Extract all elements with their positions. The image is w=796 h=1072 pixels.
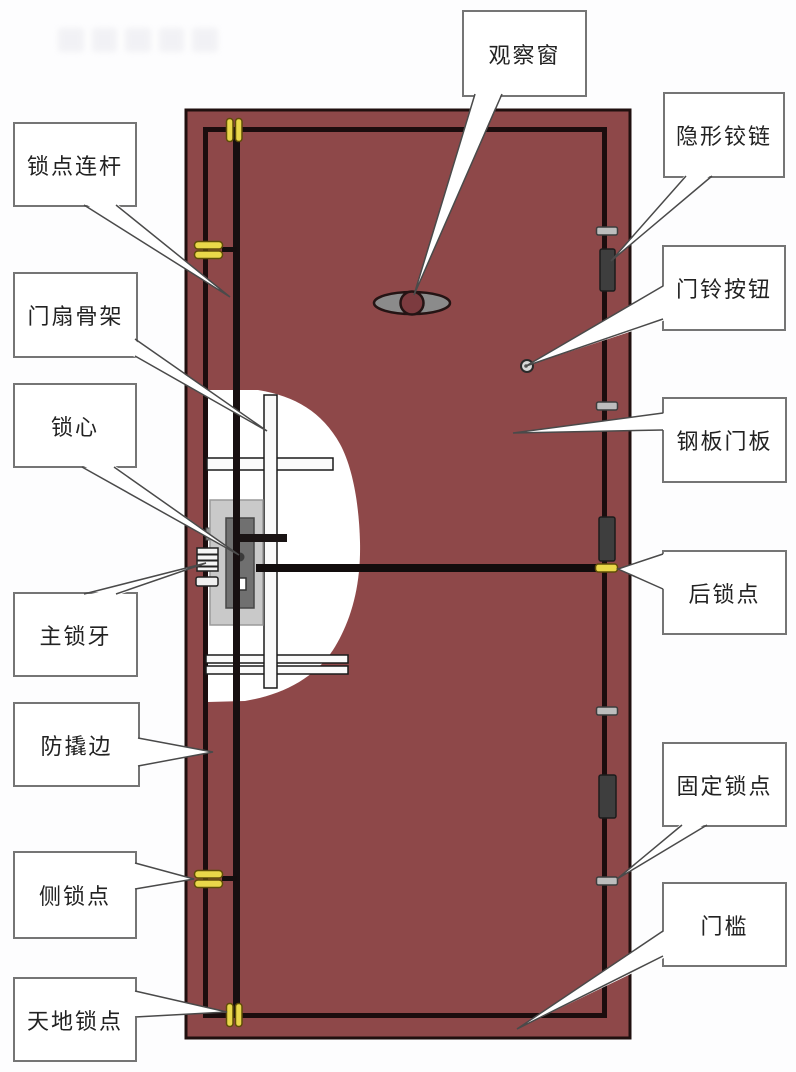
peephole	[374, 292, 450, 315]
lock-point-connecting-rod	[233, 130, 240, 1016]
hinge-pin-4	[597, 877, 618, 885]
side-lock-link-bottom	[222, 876, 237, 881]
label-side-lock-point: 侧锁点	[13, 851, 137, 939]
label-rear-lock-point: 后锁点	[662, 550, 787, 635]
label-steel-door-panel: 钢板门板	[662, 397, 787, 483]
label-main-lock-teeth: 主锁牙	[13, 592, 138, 677]
hidden-hinge-2	[599, 517, 615, 561]
label-lock-core: 锁心	[13, 383, 137, 468]
label-peephole: 观察窗	[462, 10, 587, 97]
side-lock-link-top	[222, 247, 237, 252]
hidden-hinge-3	[599, 775, 616, 818]
rear-lock-point	[596, 564, 618, 572]
label-hidden-hinge: 隐形铰链	[663, 92, 785, 178]
label-anti-pry-edge: 防撬边	[13, 702, 140, 787]
hidden-hinge-1	[600, 249, 615, 291]
label-door-skeleton: 门扇骨架	[13, 272, 138, 358]
label-fixed-lock-point: 固定锁点	[662, 742, 787, 827]
main-lock-teeth	[196, 548, 218, 586]
doorbell-button	[521, 360, 533, 372]
handle-bar	[237, 534, 287, 542]
label-doorbell-button: 门铃按钮	[662, 245, 786, 331]
label-lock-point-rod: 锁点连杆	[13, 122, 137, 207]
label-door-sill: 门槛	[662, 882, 787, 967]
door-structure-diagram: 锁点连杆 门扇骨架 锁心 主锁牙 防撬边 侧锁点 天地锁点 观察窗 隐形铰链 门…	[0, 0, 796, 1072]
hinge-pin-2	[597, 402, 618, 410]
hinge-pin-1	[597, 227, 618, 235]
hinge-pin-3	[597, 707, 618, 715]
label-sky-earth-lock-point: 天地锁点	[13, 977, 137, 1062]
rear-lock-linkage-bar	[256, 564, 597, 572]
